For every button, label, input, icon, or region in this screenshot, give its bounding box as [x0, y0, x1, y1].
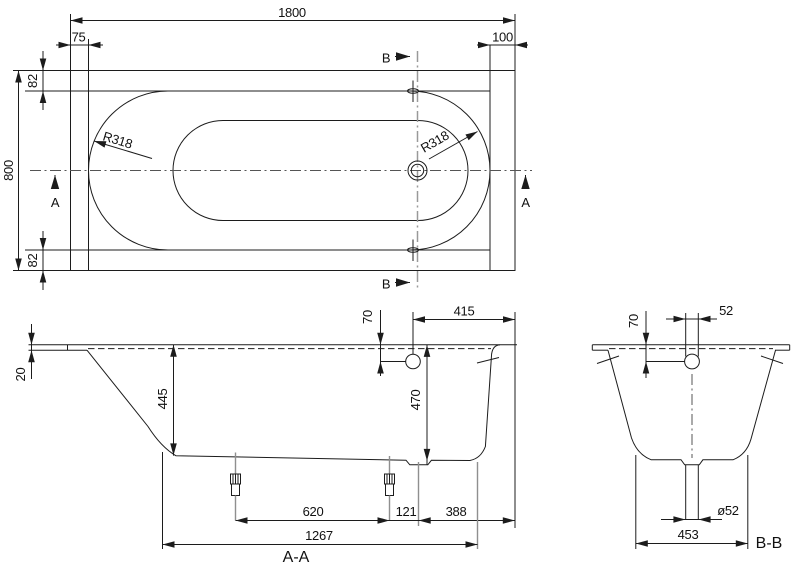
dim-foot-to-drain: 121	[396, 504, 417, 519]
dim-depth-drain: 470	[408, 390, 423, 411]
tub-cross-section-profile	[608, 350, 776, 465]
overflow-hole	[406, 354, 421, 369]
dim-radius-right: R318	[418, 128, 451, 156]
dim-pipe-width: 52	[719, 303, 733, 318]
section-marker-a-right: A	[521, 195, 530, 210]
section-marker-b-bottom: B	[382, 277, 390, 292]
section-aa-view: 20 445 70 415 470	[13, 304, 517, 567]
bathtub-dimension-drawing: 1800 75 100 82 82 800 A A B	[0, 0, 800, 567]
dim-overflow-drop-bb: 70	[626, 314, 641, 328]
dim-rim-thickness: 20	[13, 368, 28, 382]
dim-base-length: 1267	[305, 528, 333, 543]
adjustable-foot-right	[385, 456, 395, 521]
dim-top-inset: 82	[25, 74, 40, 88]
dim-left-inset: 75	[72, 30, 86, 45]
dim-drain-to-end: 388	[446, 504, 467, 519]
overflow-hole-bb	[685, 354, 700, 369]
dim-depth-end: 445	[155, 389, 170, 410]
technical-drawing-sheet: 1800 75 100 82 82 800 A A B	[0, 0, 800, 567]
section-marker-a-left: A	[51, 195, 60, 210]
dim-bottom-inset: 82	[25, 254, 40, 268]
dim-overflow-to-end: 415	[454, 304, 475, 319]
dim-overall-length: 1800	[278, 5, 306, 20]
dim-base-width: 453	[678, 527, 699, 542]
dim-overflow-drop-aa: 70	[360, 310, 375, 324]
dim-feet-spacing: 620	[303, 504, 324, 519]
dim-right-inset: 100	[492, 30, 513, 45]
tub-section-profile	[87, 345, 500, 465]
section-bb-label: B-B	[756, 535, 783, 552]
adjustable-foot-left	[231, 453, 241, 521]
dim-drain-diameter: ø52	[717, 503, 739, 518]
plan-view: 1800 75 100 82 82 800 A A B	[1, 5, 532, 292]
dim-overall-width: 800	[1, 160, 16, 181]
section-bb-view: 52 70 ø52 453 B-B	[592, 303, 789, 552]
section-aa-label: A-A	[283, 549, 310, 566]
section-marker-b-top: B	[382, 51, 390, 66]
